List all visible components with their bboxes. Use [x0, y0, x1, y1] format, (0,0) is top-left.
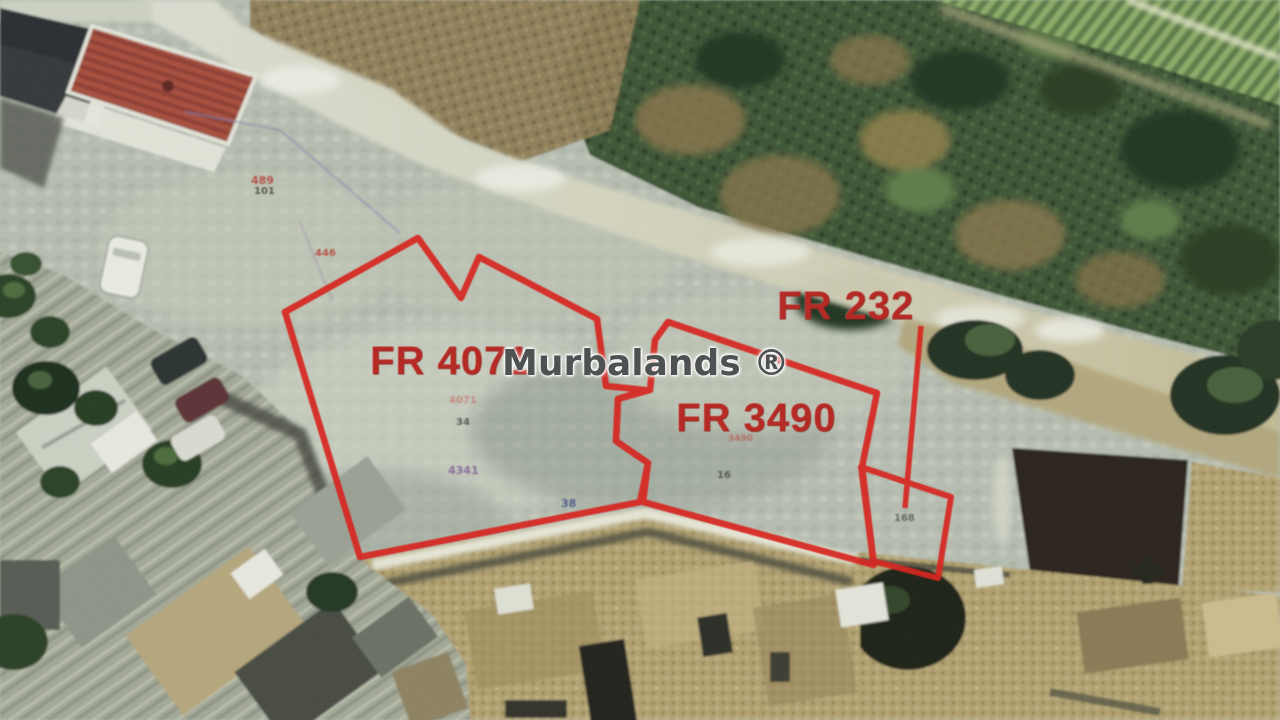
ground-mark-101: 101 — [254, 186, 275, 197]
parcel-label-fr3490: FR 3490 — [676, 396, 836, 441]
ground-mark-446: 446 — [315, 248, 336, 259]
aerial-parcel-map: FR 4071 Murbalands ® FR 3490 FR 232 489 … — [0, 0, 1280, 720]
ground-mark-4341: 4341 — [448, 464, 479, 477]
ground-mark-16: 16 — [717, 470, 731, 481]
watermark: Murbalands ® — [502, 343, 789, 384]
parcel-label-fr232: FR 232 — [777, 284, 914, 329]
ground-mark-3490: 3490 — [728, 434, 753, 444]
ground-mark-4071: 4071 — [449, 395, 477, 406]
ground-mark-168: 168 — [894, 513, 915, 524]
ground-mark-38: 38 — [561, 497, 576, 510]
ground-mark-34: 34 — [456, 417, 470, 428]
